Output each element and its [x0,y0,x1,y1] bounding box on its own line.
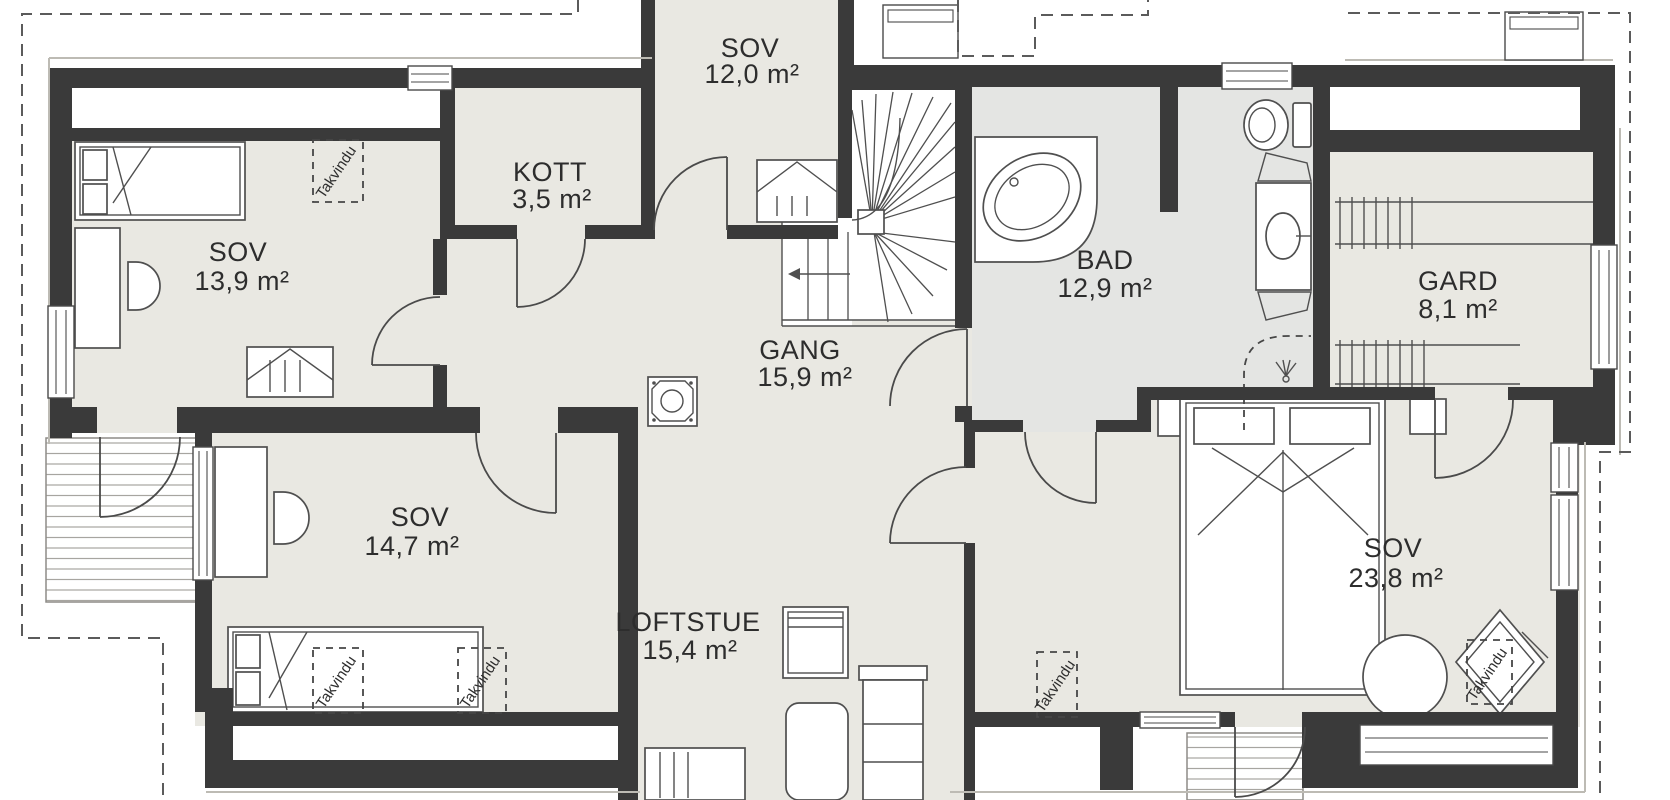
room-name: SOV [209,237,268,267]
window [1591,245,1617,369]
terrace-deck [46,438,207,602]
attic-strip [72,88,440,128]
room-name: GANG [759,335,841,365]
bed-icon [75,142,245,220]
roof-window-icon [883,5,958,58]
window [1551,443,1578,492]
floor-plan-page: Takvindu Takvindu Takvindu Takvindu Takv… [0,0,1670,800]
nightstand-icon [1410,399,1446,434]
room-area: 23,8 m² [1348,563,1443,593]
room-label-kott: KOTT 3,5 m² [512,157,592,214]
wardrobe-icon [757,160,837,222]
room-area: 8,1 m² [1418,294,1498,324]
room-name: BAD [1076,245,1133,275]
room-area: 15,9 m² [757,362,852,392]
room-area: 15,4 m² [642,635,737,665]
desk-icon [215,447,267,577]
toilet-icon [1244,100,1311,150]
chaise-icon [786,703,848,800]
round-table-icon [1363,635,1447,719]
room-name: SOV [391,502,450,532]
dresser-icon [247,347,333,397]
roof-window-icon [1505,12,1583,60]
window [1222,63,1292,89]
window [1551,495,1578,590]
stairwell [852,88,955,320]
room-area: 3,5 m² [512,184,592,214]
chimney-icon [648,377,697,426]
attic-strip [1340,87,1580,130]
bookshelf-icon [859,666,927,800]
room-area: 12,9 m² [1057,273,1152,303]
room-area: 13,9 m² [194,266,289,296]
room-name: GARD [1418,266,1498,296]
room-name: LOFTSTUE [615,607,760,637]
window [408,66,452,90]
window [1360,725,1553,765]
tv-bench-icon [645,748,745,800]
bed-icon [228,627,483,712]
attic-strip [212,726,638,760]
room-label-gard: GARD 8,1 m² [1418,266,1498,324]
floor-plan: Takvindu Takvindu Takvindu Takvindu Takv… [0,0,1670,800]
desk-icon [75,228,120,348]
window [1140,712,1220,728]
sofa-icon [783,607,848,678]
balcony-deck [1187,733,1303,800]
window [48,306,74,398]
room-name: SOV [1364,533,1423,563]
floor-gard [1313,130,1615,400]
room-area: 14,7 m² [364,531,459,561]
room-name: KOTT [513,157,587,187]
room-label-gang: GANG 15,9 m² [757,335,852,392]
window [193,447,213,580]
double-bed-icon [1180,397,1385,695]
bathtub-icon [967,135,1098,262]
room-area: 12,0 m² [704,59,799,89]
